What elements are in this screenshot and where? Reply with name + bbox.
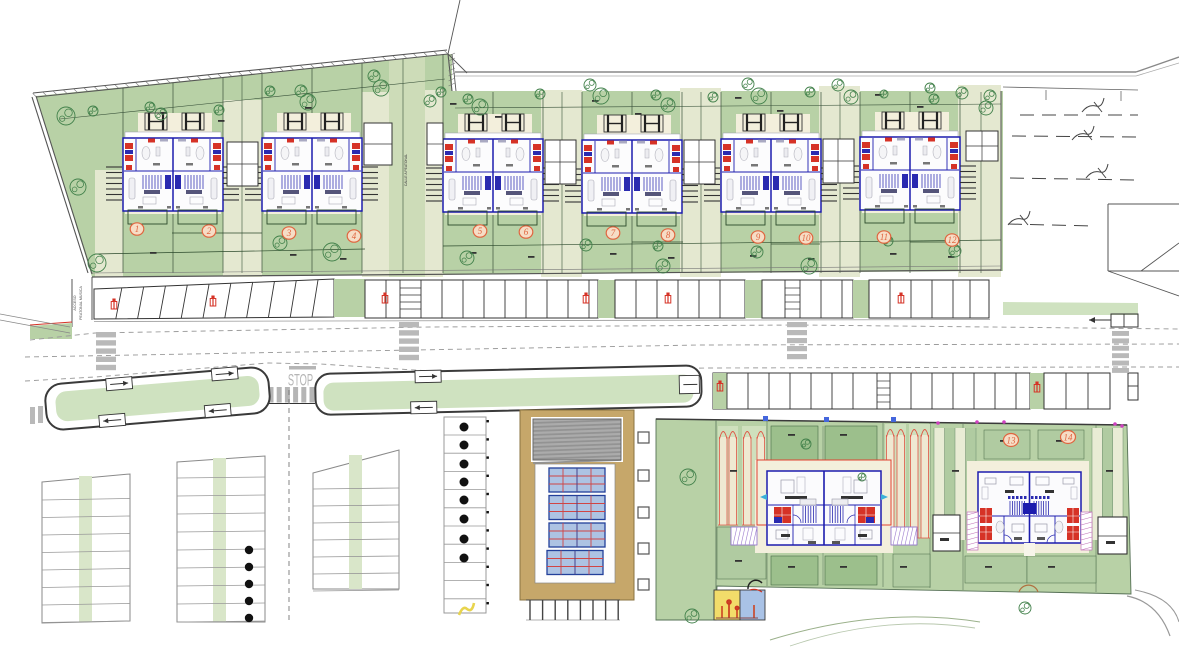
svg-text:9: 9 [756,232,761,242]
svg-text:4: 4 [352,231,357,241]
svg-text:STOP: STOP [288,371,313,389]
svg-text:PEATONAL MUSICA: PEATONAL MUSICA [79,286,83,320]
svg-text:12: 12 [948,235,958,245]
svg-text:5: 5 [478,226,483,236]
svg-text:13: 13 [1007,435,1017,445]
svg-text:6: 6 [524,227,529,237]
svg-text:1: 1 [135,224,140,234]
svg-text:8: 8 [666,230,671,240]
svg-text:7: 7 [611,228,616,238]
svg-text:10: 10 [802,233,812,243]
svg-text:CALLE A PEATONAL: CALLE A PEATONAL [404,154,408,186]
svg-text:3: 3 [286,228,292,238]
svg-text:ACCESO: ACCESO [73,295,77,310]
svg-text:2: 2 [207,226,212,236]
svg-text:14: 14 [1064,432,1074,442]
svg-text:11: 11 [880,232,888,242]
